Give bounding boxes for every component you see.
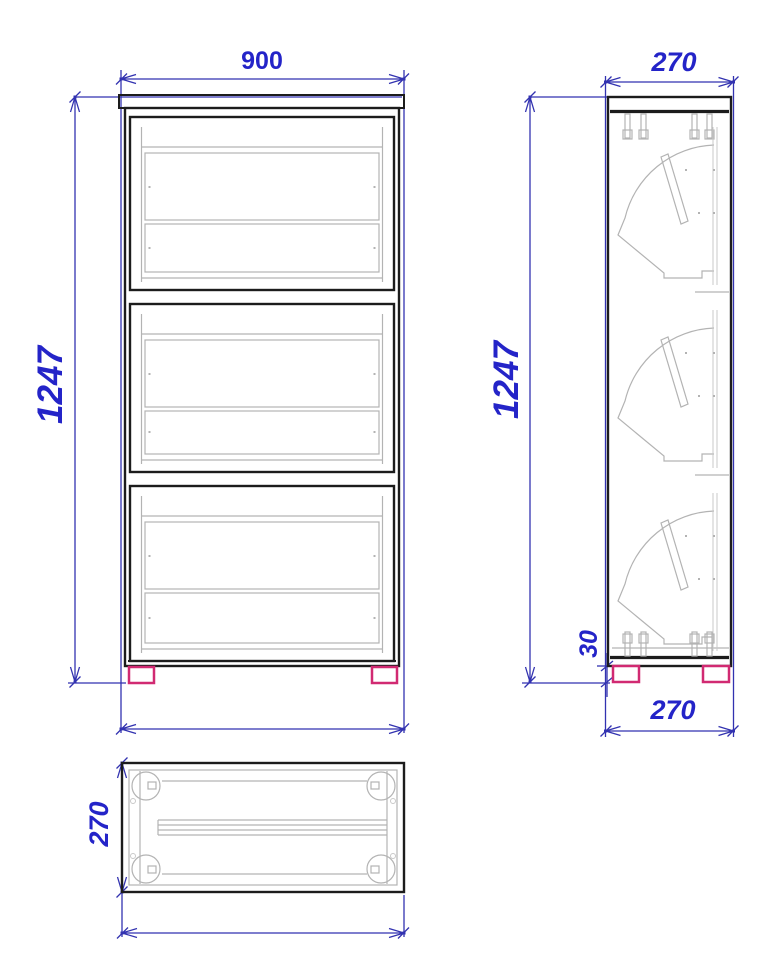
- front-foot-right: [372, 667, 397, 683]
- technical-drawing: 900 1247: [0, 0, 765, 976]
- dim-front-height: [70, 92, 81, 688]
- front-flap-2: [130, 304, 394, 472]
- side-compartment-2: [618, 310, 717, 468]
- side-foot-back: [703, 666, 729, 682]
- drawing-svg: 900 1247: [0, 0, 765, 976]
- dim-plan-bottom: [117, 928, 409, 939]
- side-feet-height-label: 30: [575, 630, 603, 658]
- plan-depth-label: 270: [84, 801, 114, 847]
- side-depth-bottom-label: 270: [649, 695, 695, 725]
- dim-side-depth-bottom: [601, 726, 739, 737]
- plan-inner-panel: [129, 770, 397, 885]
- dim-front-width: [116, 74, 409, 85]
- dim-side-depth-top: [601, 77, 739, 88]
- side-foot-front: [613, 666, 639, 682]
- front-foot-left: [129, 667, 154, 683]
- dim-front-extensions: [68, 70, 404, 733]
- front-view: 900 1247: [31, 47, 409, 735]
- side-height-label: 1247: [487, 340, 526, 419]
- plan-cabinet-body: [122, 763, 404, 892]
- front-flap-1: [130, 117, 394, 290]
- side-depth-top-label: 270: [650, 47, 696, 77]
- side-compartment-1: [618, 127, 717, 285]
- plan-view: 270: [84, 758, 409, 939]
- plan-center-rails: [131, 781, 396, 874]
- front-cabinet-body: [125, 108, 399, 666]
- side-top-pegs: [623, 114, 714, 139]
- side-view: 270 1247 30 270: [487, 47, 739, 737]
- front-width-label: 900: [241, 47, 283, 75]
- dim-front-bottom: [116, 724, 409, 735]
- front-height-label: 1247: [31, 345, 70, 424]
- front-flap-3: [130, 486, 394, 661]
- side-compartment-3: [618, 493, 717, 651]
- plan-corner-glides: [132, 772, 395, 883]
- dim-plan-extensions: [122, 763, 404, 937]
- dim-side-height: [525, 92, 536, 688]
